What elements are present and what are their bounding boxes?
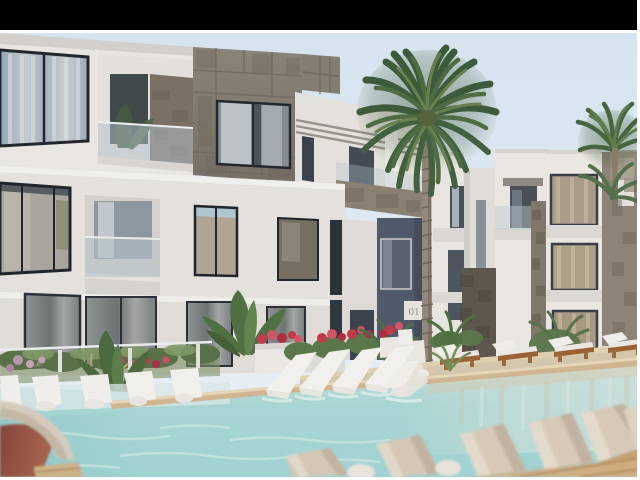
svg-text:01: 01 [409, 306, 420, 318]
